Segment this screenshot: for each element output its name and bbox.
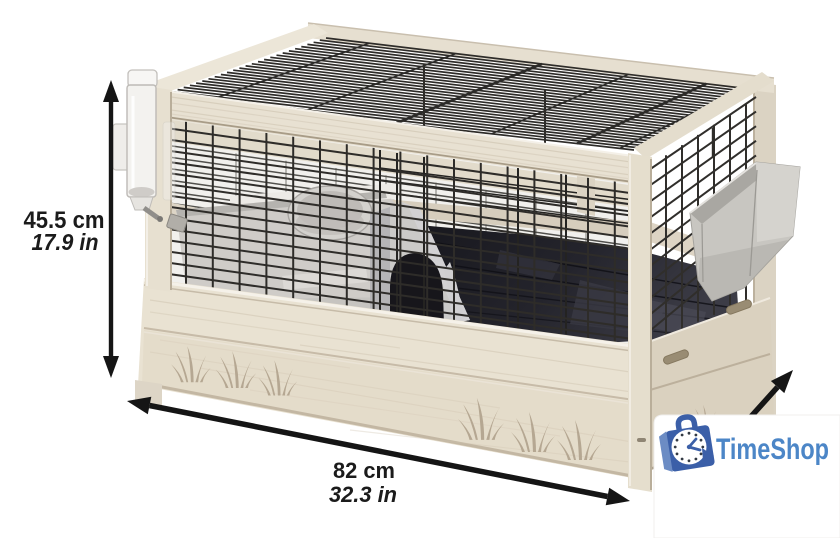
svg-text:82 cm: 82 cm: [333, 458, 395, 483]
svg-text:TimeShop: TimeShop: [716, 433, 829, 466]
svg-text:17.9 in: 17.9 in: [32, 229, 99, 255]
svg-text:32.3 in: 32.3 in: [329, 482, 397, 507]
